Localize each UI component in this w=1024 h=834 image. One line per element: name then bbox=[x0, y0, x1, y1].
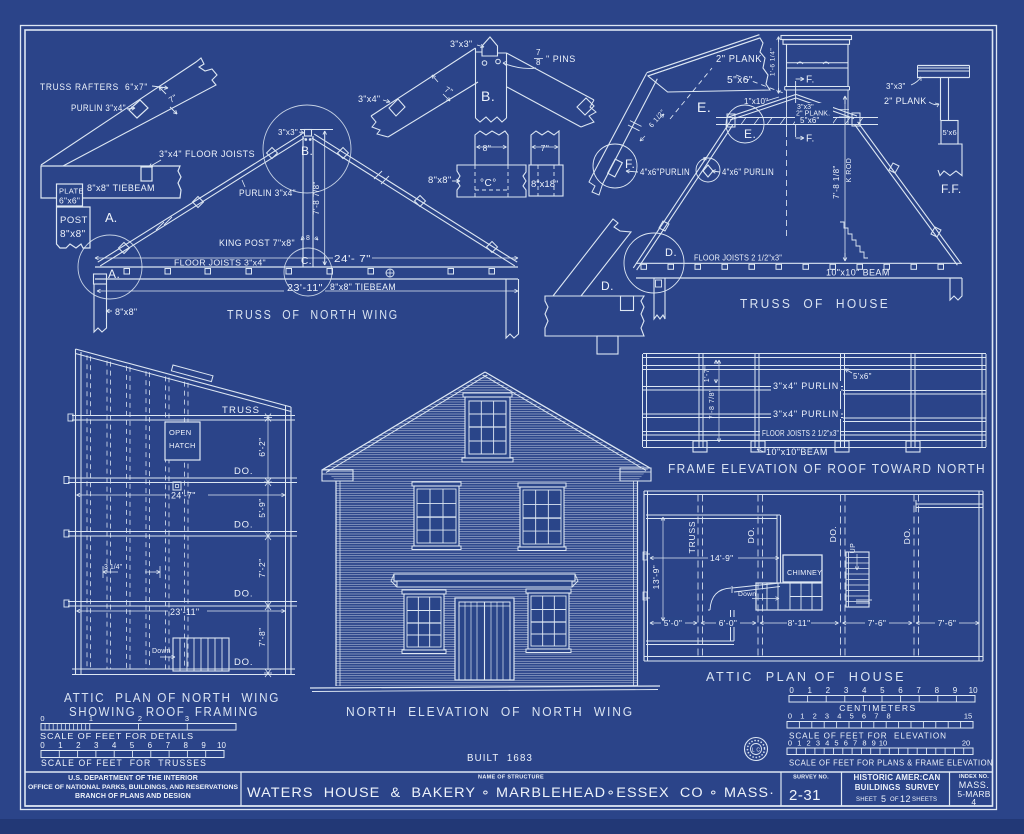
svg-text:DO.: DO. bbox=[746, 527, 756, 544]
svg-text:HATCH: HATCH bbox=[169, 441, 196, 450]
svg-text:3 1/4": 3 1/4" bbox=[104, 564, 123, 571]
svg-text:DO.: DO. bbox=[828, 526, 838, 543]
svg-text:1'-7": 1'-7" bbox=[704, 366, 711, 382]
svg-text:5"x6": 5"x6" bbox=[800, 116, 820, 125]
svg-text:BUILDINGS SURVEY: BUILDINGS SURVEY bbox=[855, 783, 940, 792]
svg-text:ATTIC PLAN OF NORTH WING: ATTIC PLAN OF NORTH WING bbox=[64, 690, 280, 705]
svg-text:OFFICE OF NATIONAL PARKS, BUIL: OFFICE OF NATIONAL PARKS, BUILDINGS, AND… bbox=[28, 784, 239, 791]
svg-text:3: 3 bbox=[844, 686, 849, 695]
svg-text:6'-2": 6'-2" bbox=[257, 437, 267, 456]
svg-text:6: 6 bbox=[148, 741, 153, 750]
svg-text:7'-8 7/8": 7'-8 7/8" bbox=[312, 181, 321, 215]
svg-text:F: F bbox=[703, 157, 708, 164]
svg-text:U.S. DEPARTMENT OF THE INTERIO: U.S. DEPARTMENT OF THE INTERIOR bbox=[68, 775, 198, 782]
svg-text:NAME OF STRUCTURE: NAME OF STRUCTURE bbox=[478, 775, 544, 781]
svg-text:9: 9 bbox=[953, 686, 958, 695]
svg-text:8"x8" TIEBEAM: 8"x8" TIEBEAM bbox=[330, 282, 396, 292]
svg-text:5: 5 bbox=[850, 712, 854, 721]
svg-text:8: 8 bbox=[887, 712, 891, 721]
svg-text:8"x8": 8"x8" bbox=[115, 307, 137, 317]
svg-text:9: 9 bbox=[201, 741, 206, 750]
svg-text:3: 3 bbox=[825, 712, 829, 721]
svg-text:SHEET: SHEET bbox=[856, 797, 877, 803]
svg-text:HISTORIC AMER:CAN: HISTORIC AMER:CAN bbox=[854, 773, 941, 782]
svg-text:Down: Down bbox=[738, 591, 756, 598]
svg-text:1: 1 bbox=[800, 712, 804, 721]
svg-text:K ROD: K ROD bbox=[846, 158, 853, 183]
svg-text:24'-7": 24'-7" bbox=[171, 491, 196, 501]
svg-text:10: 10 bbox=[217, 741, 226, 750]
svg-text:A.: A. bbox=[108, 267, 120, 281]
svg-text:6: 6 bbox=[844, 739, 848, 748]
svg-text:0: 0 bbox=[788, 712, 792, 721]
svg-text:FLOOR JOISTS 3"x4": FLOOR JOISTS 3"x4" bbox=[174, 258, 266, 268]
svg-text:UP: UP bbox=[850, 543, 857, 554]
svg-text:3"x3": 3"x3" bbox=[450, 39, 472, 49]
svg-text:D.: D. bbox=[665, 247, 677, 259]
svg-text:BUILT 1683: BUILT 1683 bbox=[467, 753, 533, 764]
svg-text:7: 7 bbox=[536, 48, 541, 57]
svg-text:4: 4 bbox=[112, 741, 117, 750]
svg-text:5"x6": 5"x6" bbox=[727, 75, 753, 86]
svg-text:L C: L C bbox=[752, 748, 761, 754]
svg-text:10: 10 bbox=[879, 739, 887, 748]
svg-text:3: 3 bbox=[816, 739, 820, 748]
svg-text:WATERS HOUSE & BAKERY ∘ MAR: WATERS HOUSE & BAKERY ∘ MARBLEHEAD∘ESSEX… bbox=[247, 785, 775, 800]
svg-text:1: 1 bbox=[58, 741, 63, 750]
svg-text:0: 0 bbox=[789, 686, 794, 695]
svg-text:13'-9": 13'-9" bbox=[651, 565, 661, 590]
svg-text:TRUSS: TRUSS bbox=[687, 521, 697, 554]
svg-text:1: 1 bbox=[89, 714, 93, 723]
svg-text:2: 2 bbox=[138, 714, 142, 723]
svg-text:SHEETS: SHEETS bbox=[912, 797, 937, 803]
svg-text:B.: B. bbox=[301, 144, 313, 158]
svg-text:7: 7 bbox=[853, 739, 857, 748]
svg-text:2: 2 bbox=[813, 712, 817, 721]
svg-text:ATTIC PLAN OF HOUSE: ATTIC PLAN OF HOUSE bbox=[706, 669, 906, 684]
svg-text:TRUSS OF NORTH WING: TRUSS OF NORTH WING bbox=[227, 307, 399, 322]
svg-text:DO.: DO. bbox=[234, 589, 253, 600]
svg-text:4: 4 bbox=[837, 712, 841, 721]
svg-text:23'-11": 23'-11" bbox=[287, 283, 323, 294]
svg-text:14'-9": 14'-9" bbox=[710, 553, 733, 563]
svg-text:8'-11": 8'-11" bbox=[788, 618, 811, 628]
svg-text:5'x6": 5'x6" bbox=[853, 372, 872, 381]
svg-text:4"x6" PURLIN: 4"x6" PURLIN bbox=[722, 167, 774, 177]
svg-text:12: 12 bbox=[900, 794, 911, 804]
svg-text:2-31: 2-31 bbox=[789, 787, 821, 804]
svg-text:1: 1 bbox=[797, 739, 801, 748]
svg-text:DO.: DO. bbox=[234, 466, 253, 477]
svg-text:7'-6": 7'-6" bbox=[868, 618, 886, 628]
svg-text:E.: E. bbox=[744, 127, 756, 141]
svg-text:7'-8 7/8": 7'-8 7/8" bbox=[709, 389, 716, 419]
svg-text:KING POST 7"x8": KING POST 7"x8" bbox=[219, 238, 295, 248]
svg-text:SHOWING ROOF FRAMING: SHOWING ROOF FRAMING bbox=[69, 704, 259, 719]
svg-text:8: 8 bbox=[306, 235, 310, 242]
svg-text:8: 8 bbox=[935, 686, 940, 695]
svg-text:3"x4" PURLIN: 3"x4" PURLIN bbox=[773, 381, 839, 391]
svg-text:8: 8 bbox=[862, 739, 866, 748]
svg-text:4"x6"PURLIN: 4"x6"PURLIN bbox=[640, 167, 690, 177]
svg-text:7'-2": 7'-2" bbox=[257, 558, 267, 577]
svg-text:2" PLANK: 2" PLANK bbox=[716, 54, 762, 65]
svg-text:7: 7 bbox=[874, 712, 878, 721]
svg-text:PLATE: PLATE bbox=[59, 187, 84, 196]
svg-text:PURLIN 3"x4": PURLIN 3"x4" bbox=[239, 188, 296, 198]
svg-text:5: 5 bbox=[834, 739, 838, 748]
svg-text:D.: D. bbox=[601, 279, 614, 293]
svg-text:3"x4" FLOOR JOISTS: 3"x4" FLOOR JOISTS bbox=[159, 149, 255, 160]
svg-text:10"x10"BEAM: 10"x10"BEAM bbox=[766, 447, 828, 457]
svg-text:F.: F. bbox=[806, 134, 815, 145]
svg-text:6: 6 bbox=[898, 686, 903, 695]
svg-text:5'-0": 5'-0" bbox=[664, 618, 682, 628]
svg-text:4: 4 bbox=[862, 686, 867, 695]
svg-text:9: 9 bbox=[872, 739, 876, 748]
svg-text:0: 0 bbox=[40, 714, 44, 723]
svg-text:8"x18": 8"x18" bbox=[531, 179, 558, 190]
svg-text:OPEN: OPEN bbox=[169, 428, 191, 437]
svg-text:2: 2 bbox=[76, 741, 81, 750]
svg-text:0: 0 bbox=[40, 741, 45, 750]
svg-text:OF: OF bbox=[890, 797, 899, 803]
svg-text:3"x3": 3"x3" bbox=[886, 82, 906, 91]
svg-text:5: 5 bbox=[880, 686, 885, 695]
svg-text:3: 3 bbox=[94, 741, 99, 750]
svg-text:5'-9": 5'-9" bbox=[257, 498, 267, 517]
svg-text:TRUSS OF HOUSE: TRUSS OF HOUSE bbox=[740, 296, 890, 311]
svg-text:7": 7" bbox=[541, 143, 550, 153]
svg-text:SCALE OF FEET FOR ELEVATION: SCALE OF FEET FOR ELEVATION bbox=[789, 731, 947, 741]
svg-text:10"x10" BEAM: 10"x10" BEAM bbox=[826, 268, 890, 278]
svg-text:7'-6": 7'-6" bbox=[938, 618, 956, 628]
svg-text:SURVEY NO.: SURVEY NO. bbox=[793, 775, 829, 781]
svg-text:PURLIN 3"x4": PURLIN 3"x4" bbox=[71, 103, 126, 114]
svg-text:°C°: °C° bbox=[480, 178, 497, 189]
svg-text:8": 8" bbox=[483, 143, 492, 153]
svg-text:6'-0": 6'-0" bbox=[719, 618, 737, 628]
svg-text:SCALE OF FEET FOR DETAILS: SCALE OF FEET FOR DETAILS bbox=[40, 731, 194, 741]
svg-text:NORTH ELEVATION OF NORTH W: NORTH ELEVATION OF NORTH WING bbox=[346, 704, 634, 719]
svg-text:5: 5 bbox=[130, 741, 135, 750]
svg-text:6: 6 bbox=[862, 712, 866, 721]
svg-text:24'- 7": 24'- 7" bbox=[334, 254, 371, 265]
svg-text:7'-8": 7'-8" bbox=[257, 627, 267, 646]
svg-text:1: 1 bbox=[808, 686, 813, 695]
svg-text:" PINS: " PINS bbox=[546, 54, 576, 64]
svg-text:20: 20 bbox=[962, 739, 970, 748]
svg-text:B.: B. bbox=[481, 88, 495, 104]
svg-text:4: 4 bbox=[971, 797, 976, 807]
svg-text:3: 3 bbox=[185, 714, 189, 723]
svg-text:1"x10": 1"x10" bbox=[744, 97, 768, 106]
svg-text:F.: F. bbox=[625, 157, 635, 171]
svg-text:5'x6: 5'x6 bbox=[943, 128, 957, 137]
svg-text:DO.: DO. bbox=[902, 528, 912, 545]
svg-text:0: 0 bbox=[788, 739, 792, 748]
svg-text:3"x4": 3"x4" bbox=[358, 94, 380, 104]
svg-text:FRAME ELEVATION OF ROOF TOWARD: FRAME ELEVATION OF ROOF TOWARD NORTH bbox=[668, 461, 986, 476]
svg-text:8"x8": 8"x8" bbox=[60, 229, 86, 240]
svg-text:3"x3": 3"x3" bbox=[278, 127, 298, 137]
svg-text:BRANCH OF PLANS AND DESIGN: BRANCH OF PLANS AND DESIGN bbox=[75, 793, 191, 800]
svg-text:TRUSS RAFTERS 6"x7": TRUSS RAFTERS 6"x7" bbox=[40, 82, 148, 93]
svg-text:1'-6 1/4": 1'-6 1/4" bbox=[770, 48, 777, 76]
svg-text:5: 5 bbox=[881, 794, 887, 804]
svg-text:FLOOR JOISTS 2 1/2"x3": FLOOR JOISTS 2 1/2"x3" bbox=[762, 429, 839, 438]
svg-text:C.: C. bbox=[301, 256, 312, 267]
svg-text:FLOOR JOISTS 2 1/2"x3": FLOOR JOISTS 2 1/2"x3" bbox=[694, 253, 782, 263]
svg-text:3"x4" PURLIN: 3"x4" PURLIN bbox=[773, 409, 839, 419]
svg-text:4: 4 bbox=[825, 739, 829, 748]
svg-text:15: 15 bbox=[964, 712, 972, 721]
svg-text:6"x6": 6"x6" bbox=[59, 196, 80, 206]
svg-text:2: 2 bbox=[807, 739, 811, 748]
svg-text:DO.: DO. bbox=[234, 520, 253, 531]
svg-text:7: 7 bbox=[916, 686, 921, 695]
svg-text:Down: Down bbox=[152, 648, 171, 655]
svg-text:2: 2 bbox=[826, 686, 831, 695]
svg-text:F.: F. bbox=[806, 75, 815, 86]
svg-text:SCALE OF FEET FOR TRUSSES: SCALE OF FEET FOR TRUSSES bbox=[41, 758, 207, 768]
svg-text:2" PLANK: 2" PLANK bbox=[884, 96, 927, 106]
svg-text:23'-11": 23'-11" bbox=[170, 607, 199, 617]
svg-text:8"x8": 8"x8" bbox=[428, 175, 452, 186]
svg-text:A.: A. bbox=[105, 210, 117, 225]
svg-text:F.F.: F.F. bbox=[941, 182, 962, 196]
svg-text:7'-8 1/8": 7'-8 1/8" bbox=[832, 165, 841, 199]
svg-text:7: 7 bbox=[166, 741, 171, 750]
svg-text:POST: POST bbox=[60, 215, 88, 226]
svg-text:DO.: DO. bbox=[234, 657, 253, 668]
svg-text:8: 8 bbox=[183, 741, 188, 750]
svg-text:10: 10 bbox=[969, 686, 978, 695]
svg-text:SCALE OF FEET FOR PLANS & FRAM: SCALE OF FEET FOR PLANS & FRAME ELEVATIO… bbox=[789, 758, 993, 768]
svg-text:E.: E. bbox=[697, 99, 711, 115]
svg-text:8: 8 bbox=[536, 58, 541, 67]
svg-text:CHIMNEY: CHIMNEY bbox=[787, 568, 822, 577]
svg-text:TRUSS: TRUSS bbox=[222, 405, 260, 416]
svg-text:8"x8" TIEBEAM: 8"x8" TIEBEAM bbox=[87, 183, 155, 193]
